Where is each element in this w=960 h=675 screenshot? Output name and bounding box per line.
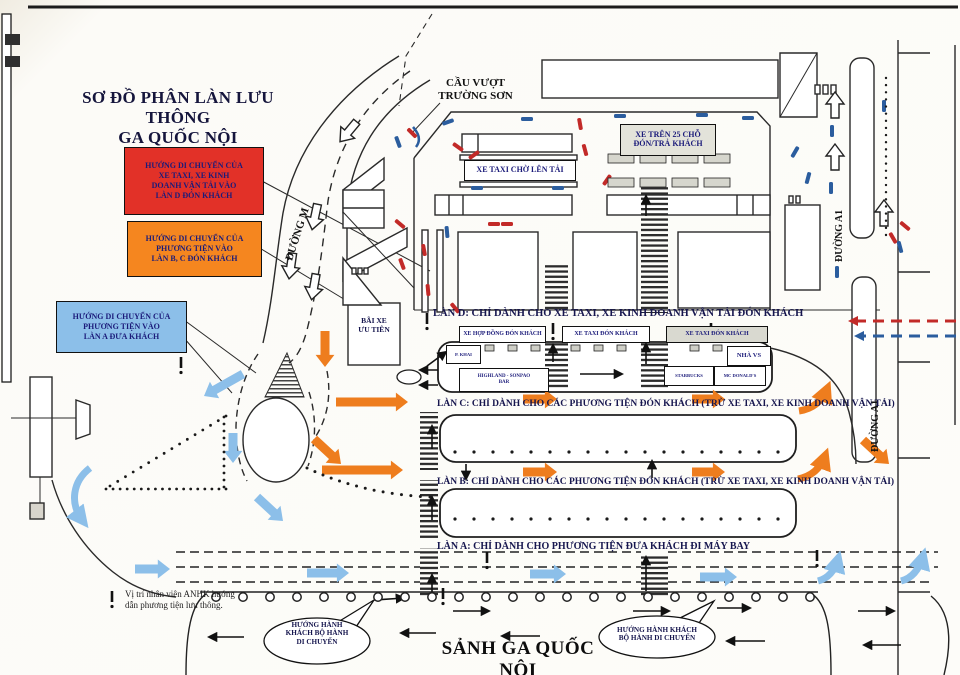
pedestrian-callout-left: HƯỚNG HÀNH KHÁCH BỘ HÀNH DI CHUYỂN (266, 621, 368, 646)
lane-d-label: LÀN D: CHỈ DÀNH CHO XE TAXI, XE KINH DOA… (433, 308, 803, 320)
staff-note: Vị trí nhân viên ANHK hướng dẫn phương t… (125, 589, 270, 610)
bus-over-25-zone: XE TRÊN 25 CHỖ ĐÓN/TRẢ KHÁCH (620, 124, 716, 156)
lane-b-label: LÀN B: CHỈ DÀNH CHO CÁC PHƯƠNG TIỆN ĐÓN … (437, 477, 894, 488)
legend-taxi-lane-d: HƯỚNG DI CHUYỂN CỦA XE TAXI, XE KINH DOA… (124, 147, 264, 215)
median-cafe: HIGHLAND - SONPAO BAR (459, 368, 549, 392)
taxi-queue-zone: XE TAXI CHỜ LÊN TẢI (464, 160, 576, 181)
right-road-a1 (748, 40, 955, 675)
median-shop-left: STARBUCKS (664, 366, 714, 386)
overpass-label: CẦU VƯỢT TRƯỜNG SƠN (418, 77, 533, 103)
median-restroom: NHÀ VS (727, 346, 771, 366)
plaza-roundabout (11, 353, 329, 597)
lane-c-label: LÀN C: CHỈ DÀNH CHO CÁC PHƯƠNG TIỆN ĐÓN … (437, 399, 895, 410)
road-a1-upper-label: ĐƯỜNG A1 (834, 194, 846, 278)
page-title: SƠ ĐỒ PHÂN LÀN LƯU THÔNG GA QUỐC NỘI (52, 88, 304, 148)
median-shop-right: MC DONALD'S (714, 366, 766, 386)
legend-pickup-lanes-bc: HƯỚNG DI CHUYỂN CỦA PHƯƠNG TIỆN VÀO LÀN … (127, 221, 262, 277)
traffic-lane-diagram: SƠ ĐỒ PHÂN LÀN LƯU THÔNG GA QUỐC NỘI HƯỚ… (0, 0, 960, 675)
median-kiosk: P. KHAI (446, 345, 481, 364)
road-a1-lower-label: ĐƯỜNG A1 (870, 384, 882, 468)
pedestrian-callout-right: HƯỚNG HÀNH KHÁCH BỘ HÀNH DI CHUYỂN (600, 626, 714, 643)
legend-dropoff-lane-a: HƯỚNG DI CHUYỂN CỦA PHƯƠNG TIỆN VÀO LÀN … (56, 301, 187, 353)
taxi-pickup-stop-2: XE TAXI ĐÓN KHÁCH (666, 326, 768, 343)
priority-parking-label: BÃI XE ƯU TIÊN (348, 317, 400, 335)
contract-car-stop: XE HỢP ĐỒNG ĐÓN KHÁCH (459, 326, 546, 343)
taxi-pickup-stop-1: XE TAXI ĐÓN KHÁCH (562, 326, 650, 343)
terminal-hall-label: SẢNH GA QUỐC NỘI (428, 638, 608, 675)
lane-a-label: LÀN A: CHỈ DÀNH CHO PHƯƠNG TIỆN ĐƯA KHÁC… (437, 541, 750, 553)
